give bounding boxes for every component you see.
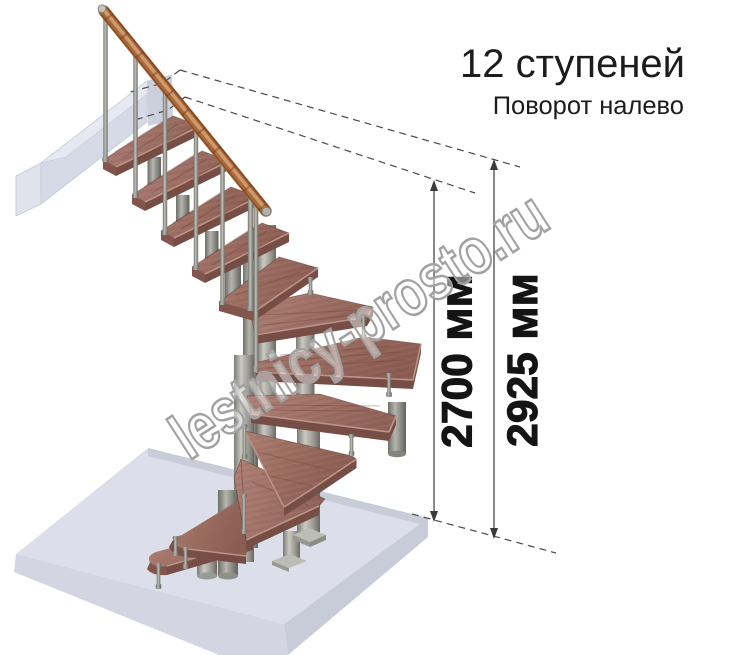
svg-text:2925 мм: 2925 мм <box>496 273 547 447</box>
svg-text:Поворот налево: Поворот налево <box>493 92 684 120</box>
svg-text:12 ступеней: 12 ступеней <box>460 42 685 86</box>
